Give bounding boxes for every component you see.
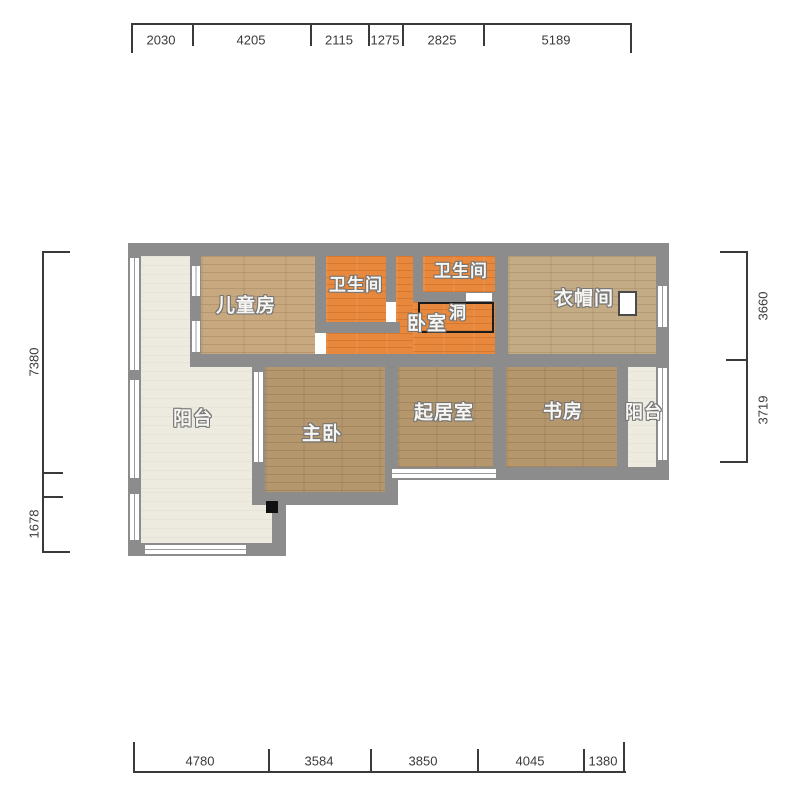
window-balcony-bottom (145, 545, 246, 554)
dim-tick (720, 461, 748, 463)
window-master (254, 372, 263, 462)
room-label-bathroom-1: 卫生间 (329, 271, 383, 296)
dim-bottom-value-3: 3850 (409, 754, 438, 769)
dim-top-line (131, 23, 632, 25)
window-left-1 (130, 258, 139, 370)
room-label-children-room: 儿童房 (216, 291, 276, 318)
dim-tick (310, 23, 312, 46)
room-label-living-room: 起居室 (414, 398, 474, 425)
room-label-balcony-right: 阳台 (625, 398, 663, 424)
room-label-opening: 洞 (449, 299, 467, 324)
dim-bottom-value-4: 4045 (516, 754, 545, 769)
floor-plan-canvas: 儿童房 卫生间 卫生间 卧室 洞 衣帽间 阳台 主卧 起居室 书房 阳台 203… (0, 0, 800, 800)
dim-bottom-line (133, 771, 626, 773)
wall-bathroom1-right (386, 256, 396, 302)
dim-top-value-2: 4205 (237, 33, 266, 48)
dim-top-value-4: 1275 (371, 33, 400, 48)
dim-tick (402, 23, 404, 46)
room-label-balcony-left: 阳台 (173, 404, 213, 431)
dim-bottom-value-1: 4780 (186, 754, 215, 769)
dim-tick (133, 742, 135, 773)
dim-right-value-1: 3660 (756, 292, 771, 321)
dim-tick (726, 359, 748, 361)
dim-tick (623, 742, 625, 773)
dim-tick (42, 496, 63, 498)
dim-tick (131, 23, 133, 53)
floor-balcony-left-top (141, 256, 190, 362)
window-children-1 (192, 266, 200, 296)
dim-right-value-2: 3719 (756, 396, 771, 425)
wall-top (128, 243, 668, 256)
dim-tick (483, 23, 485, 46)
wall-living-study (493, 354, 506, 480)
dim-tick (630, 23, 632, 53)
dim-bottom-value-2: 3584 (305, 754, 334, 769)
room-label-study: 书房 (543, 397, 583, 424)
room-label-bathroom-2: 卫生间 (434, 257, 488, 282)
dim-tick (477, 749, 479, 773)
dim-top-value-3: 2115 (325, 33, 353, 48)
dim-tick (42, 551, 70, 553)
wall-bathroom2-left (413, 256, 423, 292)
dim-left-line (42, 252, 44, 553)
dim-tick (720, 251, 748, 253)
dim-tick (583, 749, 585, 773)
dim-top-value-5: 2825 (428, 33, 457, 48)
room-label-bedroom: 卧室 (407, 309, 447, 336)
dim-left-value-2: 1678 (27, 510, 42, 539)
dim-tick (370, 749, 372, 773)
dim-top-value-6: 5189 (542, 33, 571, 48)
door-bathroom2 (466, 293, 492, 301)
window-cloakroom (658, 286, 667, 327)
dim-tick (268, 749, 270, 773)
window-living-bottom (392, 469, 496, 478)
dim-tick (42, 251, 70, 253)
dim-top-value-1: 2030 (147, 33, 176, 48)
dim-tick (42, 472, 63, 474)
column-black-square (266, 501, 278, 513)
dim-tick (192, 23, 194, 46)
wall-bathroom1-bottom (315, 322, 400, 333)
room-label-cloakroom: 衣帽间 (554, 284, 614, 311)
column-fixture (618, 291, 637, 316)
dim-right-line (746, 252, 748, 463)
floor-bedroom-band (326, 333, 413, 356)
room-label-master-bedroom: 主卧 (302, 419, 342, 446)
window-children-2 (192, 321, 200, 352)
wall-master-living (385, 354, 398, 505)
dim-bottom-value-5: 1380 (589, 754, 618, 769)
dim-left-value-1: 7380 (27, 348, 42, 377)
window-left-3 (130, 494, 139, 540)
wall-cloakroom-left (495, 243, 508, 362)
window-left-2 (130, 380, 139, 478)
